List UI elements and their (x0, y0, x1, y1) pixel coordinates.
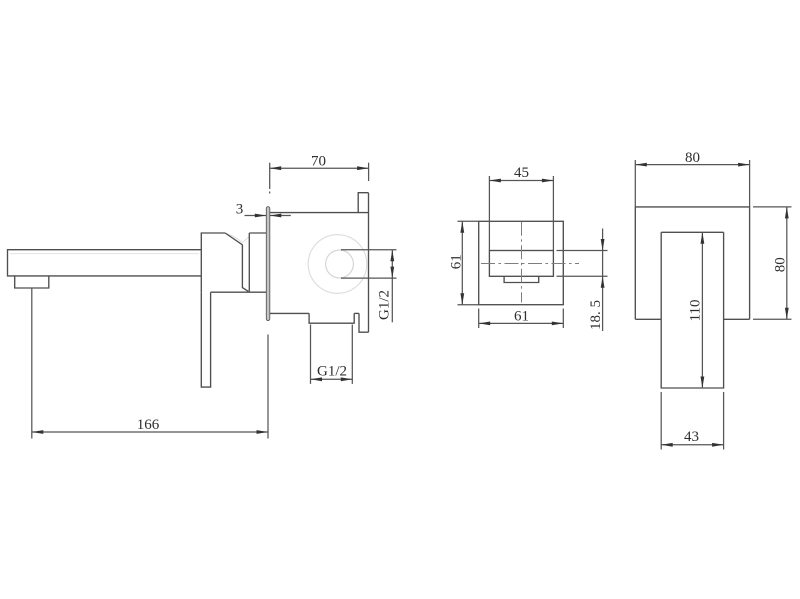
svg-text:45: 45 (514, 165, 529, 181)
svg-text:18. 5: 18. 5 (588, 300, 604, 330)
svg-text:43: 43 (684, 429, 699, 445)
svg-text:80: 80 (772, 257, 788, 272)
svg-text:70: 70 (311, 154, 326, 170)
svg-text:G1/2: G1/2 (317, 363, 347, 379)
svg-text:61: 61 (449, 254, 465, 269)
svg-text:3: 3 (236, 201, 244, 217)
svg-text:166: 166 (137, 417, 160, 433)
svg-text:G1/2: G1/2 (376, 290, 392, 320)
svg-text:110: 110 (687, 300, 703, 322)
svg-text:80: 80 (685, 150, 700, 166)
svg-text:61: 61 (514, 308, 529, 324)
